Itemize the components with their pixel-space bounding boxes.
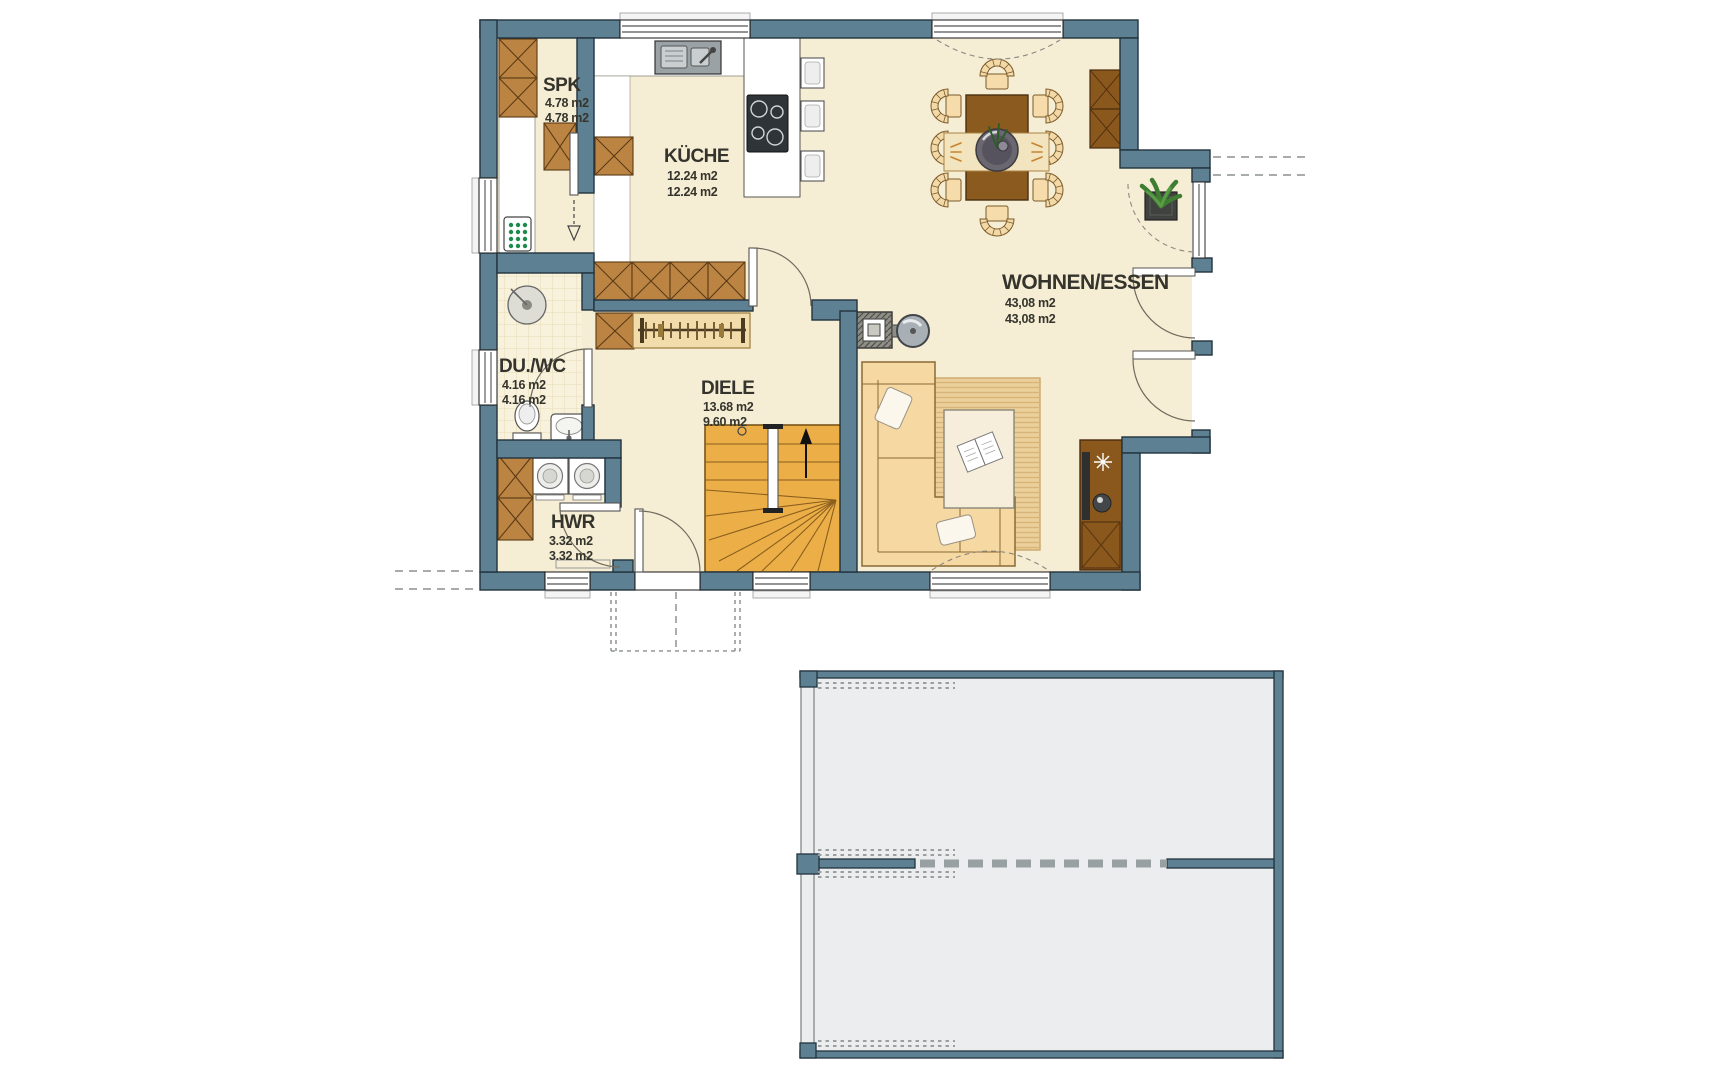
washer-icon (532, 458, 568, 500)
wall (480, 20, 620, 38)
room-area-kueche-1: 12.24 m2 (667, 169, 718, 183)
room-label-wohnen: WOHNEN/ESSEN (1002, 271, 1169, 294)
hwr-cabinet-icon (498, 455, 533, 540)
window-icon (620, 20, 750, 38)
room-area-hwr-1: 3.32 m2 (549, 534, 593, 548)
wall (700, 572, 753, 590)
kitchen-sink-icon (655, 41, 721, 74)
freezer-icon (504, 217, 531, 251)
interior-wall (594, 300, 753, 311)
wall (1192, 168, 1210, 182)
stair-railing (768, 428, 778, 512)
wall (480, 572, 545, 590)
room-label-hwr: HWR (551, 512, 596, 533)
bar-stool-icon (801, 151, 824, 181)
wall (1120, 150, 1210, 168)
wall (1050, 572, 1140, 590)
garage-wall-top (800, 671, 1283, 678)
room-area-duwc-2: 4.16 m2 (502, 393, 546, 407)
wall (1063, 20, 1138, 38)
sideboard-icon (1090, 70, 1123, 148)
room-label-diele: DIELE (701, 378, 754, 399)
bar-stool-icon (801, 101, 824, 131)
floor-plan-page: SPK 4.78 m2 4.78 m2 KÜCHE 12.24 m2 12.24… (0, 0, 1720, 1086)
wall (1122, 437, 1210, 453)
garage-divider-right (1167, 859, 1274, 868)
room-label-kueche: KÜCHE (664, 146, 729, 167)
room-area-duwc-1: 4.16 m2 (502, 378, 546, 392)
floor-plan-canvas: SPK 4.78 m2 4.78 m2 KÜCHE 12.24 m2 12.24… (0, 0, 1720, 1086)
kitchen-cabinet-icon (595, 137, 633, 175)
coat-cabinet-icon (596, 313, 634, 349)
interior-wall (582, 405, 594, 440)
shower-icon (508, 286, 546, 324)
wall-niche (613, 560, 633, 572)
wall (1120, 38, 1138, 150)
window-icon (545, 572, 590, 590)
wall (750, 20, 932, 38)
bar-stool-icon (801, 58, 824, 88)
wall (480, 20, 497, 178)
room-label-duwc: DU./WC (499, 356, 566, 377)
interior-wall (497, 440, 621, 458)
interior-wall (605, 458, 621, 507)
room-area-spk-1: 4.78 m2 (545, 96, 589, 110)
interior-wall (582, 273, 594, 310)
tv-cabinet-icon (1080, 440, 1122, 570)
window-icon (753, 572, 810, 590)
wardrobe-rail-icon (633, 313, 750, 348)
room-area-wohnen-1: 43,08 m2 (1005, 296, 1056, 310)
window-icon (479, 178, 497, 253)
garage-wall-bottom (800, 1051, 1283, 1058)
hall-cabinet-row (594, 262, 745, 300)
interior-wall (497, 253, 594, 273)
toilet-icon (513, 401, 541, 441)
window-icon (479, 350, 497, 405)
wall (590, 572, 635, 590)
wall (480, 253, 497, 350)
fireplace-icon (856, 312, 929, 348)
wall (1122, 453, 1140, 590)
garage-wall-right (1274, 671, 1283, 1058)
bar-stools (801, 58, 824, 181)
interior-wall (840, 311, 857, 572)
staircase-icon (705, 424, 841, 572)
room-area-spk-2: 4.78 m2 (545, 111, 589, 125)
wall (810, 572, 930, 590)
room-area-diele-1: 13.68 m2 (703, 400, 754, 414)
dryer-icon (569, 458, 605, 500)
room-label-spk: SPK (543, 75, 581, 96)
room-area-hwr-2: 3.32 m2 (549, 549, 593, 563)
room-area-kueche-2: 12.24 m2 (667, 185, 718, 199)
wall (480, 405, 497, 572)
garage (797, 671, 1283, 1058)
room-area-wohnen-2: 43,08 m2 (1005, 312, 1056, 326)
room-area-diele-2: 9.60 m2 (703, 415, 747, 429)
coffee-table-icon (944, 410, 1014, 508)
cooktop-icon (747, 95, 788, 152)
